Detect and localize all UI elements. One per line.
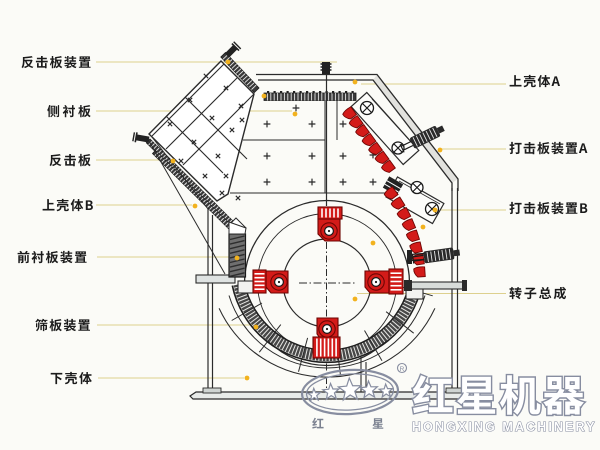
svg-text:HONGXING MACHINERY: HONGXING MACHINERY	[412, 420, 597, 434]
svg-text:R: R	[400, 366, 405, 373]
